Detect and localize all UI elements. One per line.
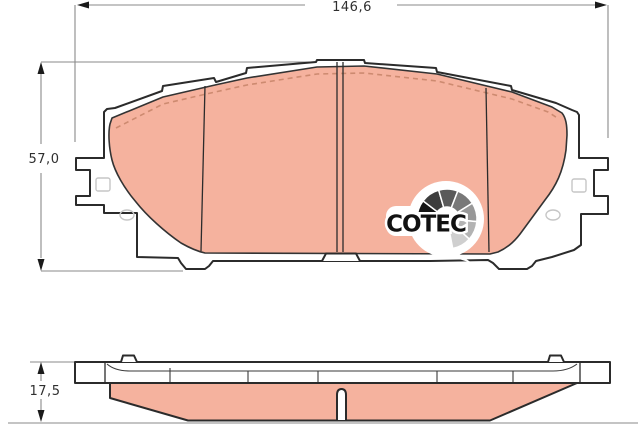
arrow-up-icon <box>38 362 45 374</box>
profile-view <box>75 356 610 421</box>
width-label: 146,6 <box>332 0 372 15</box>
friction-material <box>109 66 567 254</box>
arrow-down-icon <box>38 259 45 271</box>
front-view <box>76 60 608 269</box>
profile-groove-slot <box>337 389 346 420</box>
wear-tab-left <box>121 356 137 363</box>
wear-tab-right <box>548 356 564 363</box>
arrow-up-icon <box>38 62 45 74</box>
cotec-text: COTEC <box>386 212 466 238</box>
arrow-down-icon <box>38 410 45 422</box>
height-label: 57,0 <box>29 152 60 167</box>
arrow-right-icon <box>595 2 607 9</box>
profile-backing-plate <box>75 362 610 383</box>
bottom-center-notch <box>322 254 360 262</box>
thickness-label: 17,5 <box>30 384 61 399</box>
arrow-left-icon <box>77 2 89 9</box>
brake-pad-technical-drawing: 146,6 57,0 <box>0 0 640 426</box>
